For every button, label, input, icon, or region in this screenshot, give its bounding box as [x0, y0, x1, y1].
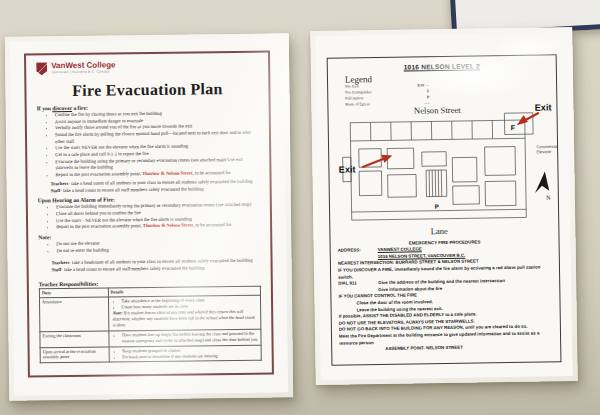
list-item-assembly-point: Report to the post evacuation assembly p…: [56, 222, 260, 231]
floor-plan-map: Nelson Street Lane F P Exit Exit Commerc…: [335, 101, 563, 241]
elevator-label-line2: Elevator: [536, 149, 552, 154]
note-text: If a student leaves class at any time an…: [113, 309, 255, 328]
page-title: Fire Evacuation Plan: [36, 80, 258, 101]
north-label: N: [546, 194, 551, 200]
teacher-responsibilities-table: Duty Details Attendance Take attendance …: [39, 286, 262, 364]
assembly-point-highlight: Thurlow & Nelson Street: [143, 223, 193, 229]
lane-label: Lane: [431, 225, 449, 235]
duty-cell: Attendance: [39, 297, 108, 332]
details-list: Have students line up single file before…: [111, 330, 259, 344]
report-pre: Report to the post evacuation assembly p…: [55, 171, 142, 177]
address-label: ADDRESS:: [338, 247, 372, 254]
assembly-point-highlight: Thurlow & Nelson Street: [142, 171, 192, 177]
list-item: Do headcount to determine if any student…: [122, 352, 259, 360]
note-list: Do not use the elevator Do not re-enter …: [38, 239, 260, 255]
teachers-text: take a head count of all students in you…: [70, 178, 253, 185]
teachers-label: Teachers-: [51, 181, 70, 186]
staff-label: Staff-: [52, 267, 63, 272]
plastic-sleeve-right: 1016 NELSON LEVEL 2 Legend Fire ExitExit…: [310, 27, 578, 385]
table-row: Attendance Take attendance at the beginn…: [39, 295, 260, 332]
heading-part-underlined: discover: [52, 105, 72, 111]
teachers-label: Teachers-: [52, 260, 71, 265]
legend-label: Route of Egress: [345, 102, 369, 108]
table-row: Upon arrival at the evacuation assembly …: [40, 345, 261, 364]
heading-part: If you: [37, 105, 53, 111]
alarm-list: Evacuate the building immediately using …: [38, 202, 260, 231]
nelson-level2-page: 1016 NELSON LEVEL 2 Legend Fire ExitExit…: [315, 32, 572, 380]
details-list: Keep students grouped in classes Do head…: [111, 346, 259, 360]
exit-label-mid-left: Exit: [339, 164, 356, 174]
dial-911-label: DIAL 911: [338, 280, 372, 287]
assembly-point-line: ASSEMBLY POINT: NELSON STREET: [385, 344, 553, 353]
vanwest-shield-icon: [36, 62, 47, 75]
duty-cell: Exiting the classroom: [40, 331, 109, 348]
duty-cell: Upon arrival at the evacuation assembly …: [40, 347, 109, 364]
list-item: Have students line up single file before…: [122, 330, 259, 344]
note-label: Note:: [113, 310, 123, 315]
details-cell: Have students line up single file before…: [108, 329, 261, 347]
staff-headcount-note: Staff- take a head count to ensure all s…: [51, 185, 260, 194]
report-pre: Report to the post evacuation assembly p…: [56, 223, 143, 229]
details-cell: Keep students grouped in classes Do head…: [109, 345, 262, 363]
discover-fire-list: Confine the fire by closing doors as you…: [37, 110, 260, 179]
staff-label: Staff-: [51, 188, 62, 193]
report-post: , to be accounted for: [193, 222, 231, 227]
heading-part: a fire:: [72, 105, 88, 111]
fire-evacuation-plan-page: VanWest College Vancouver | Kelowna B.C.…: [10, 38, 288, 395]
brand-tagline: Vancouver | Kelowna B.C. Canada: [51, 70, 115, 75]
details-cell: Take attendance at the beginning of ever…: [108, 295, 261, 331]
table-note: Note: If a student leaves class at any t…: [113, 308, 259, 328]
list-item-assembly-point: Report to the post evacuation assembly p…: [55, 170, 259, 179]
report-post: , to be accounted for: [192, 170, 230, 175]
exit-arrow-mid-left: [362, 157, 386, 167]
pull-station-marker: P: [435, 202, 439, 209]
emergency-procedures: EMERGENCY FIRE PROCEDURES ADDRESS:VANWES…: [338, 238, 554, 354]
north-arrow-icon: [535, 171, 550, 193]
vanwest-logo: VanWest College Vancouver | Kelowna B.C.…: [36, 60, 258, 76]
extinguisher-marker: F: [511, 124, 516, 132]
map-title: 1016 NELSON LEVEL 2: [335, 61, 549, 71]
brand-text: VanWest College Vancouver | Kelowna B.C.…: [51, 62, 115, 75]
staff-text: take a head count to ensure all staff me…: [63, 266, 205, 273]
exit-arrowhead-mid-left: [381, 154, 392, 162]
exit-label-top-right: Exit: [535, 102, 552, 112]
left-doc-border-box: VanWest College Vancouver | Kelowna B.C.…: [24, 51, 274, 378]
teachers-text: take a headcount of all students in your…: [71, 258, 253, 265]
plastic-sleeve-left: VanWest College Vancouver | Kelowna B.C.…: [5, 33, 293, 400]
right-doc-border-box: 1016 NELSON LEVEL 2 Legend Fire ExitExit…: [327, 54, 562, 366]
staff-text: take a head count to ensure all staff me…: [62, 186, 204, 193]
address-street-text: 1016 NELSON STREET, VANCOUVER B.C.: [378, 252, 466, 258]
nelson-street-label: Nelson Street: [414, 104, 461, 115]
